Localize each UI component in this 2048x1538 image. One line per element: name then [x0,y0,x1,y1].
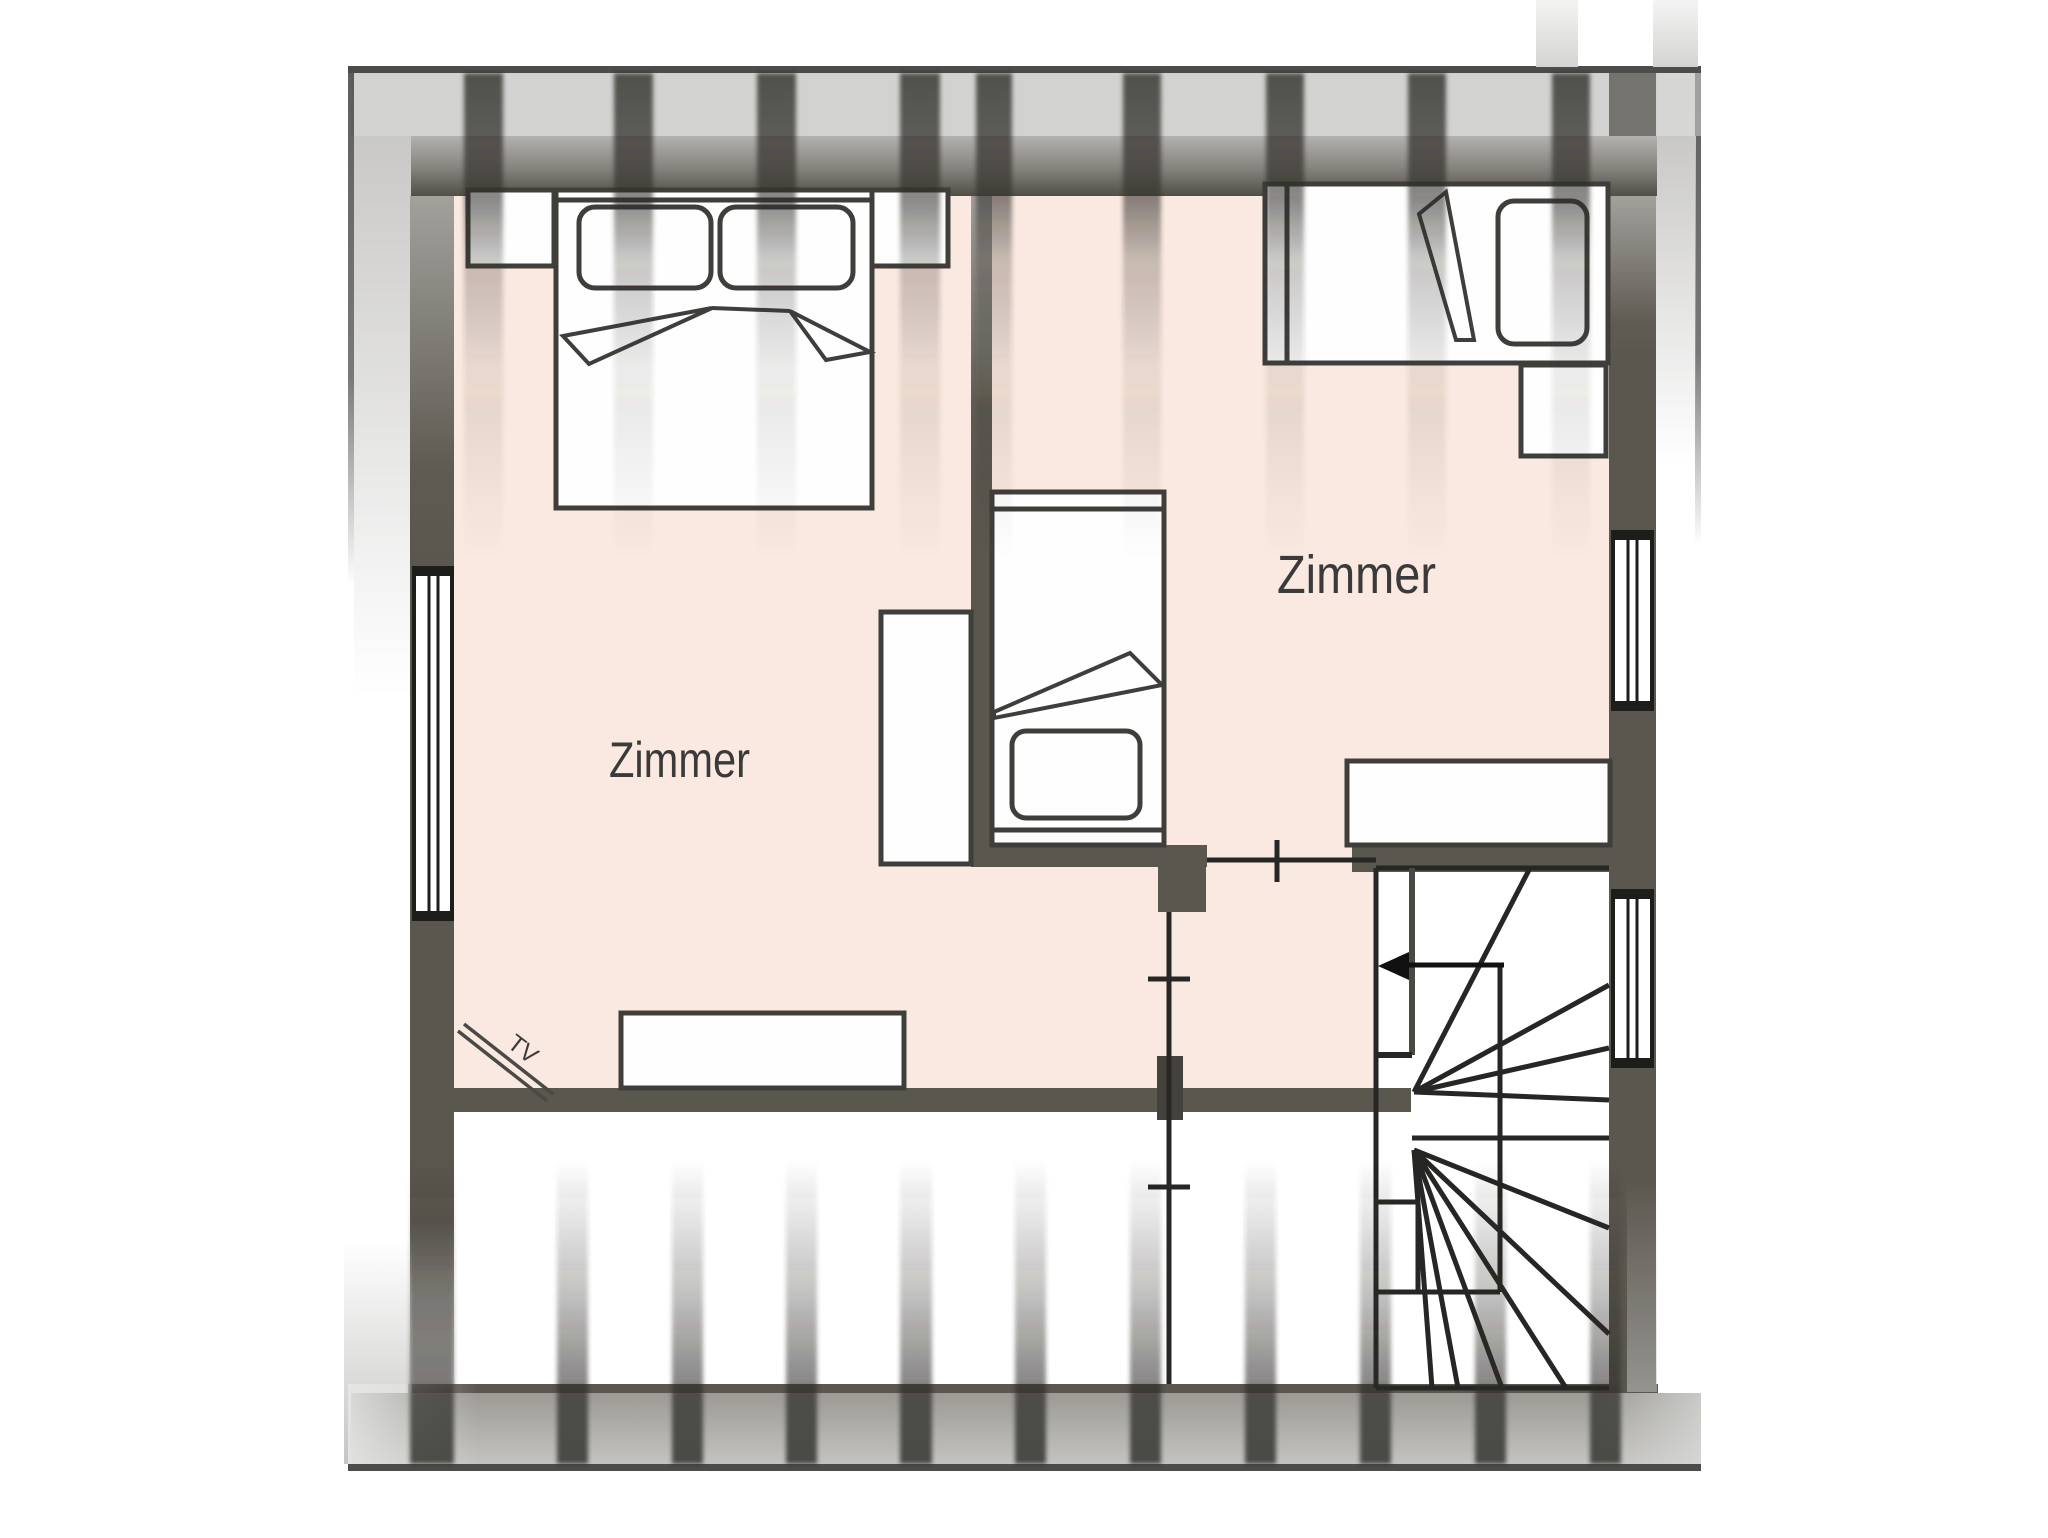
svg-text:Zimmer: Zimmer [1277,545,1436,605]
svg-text:Zimmer: Zimmer [609,732,750,788]
